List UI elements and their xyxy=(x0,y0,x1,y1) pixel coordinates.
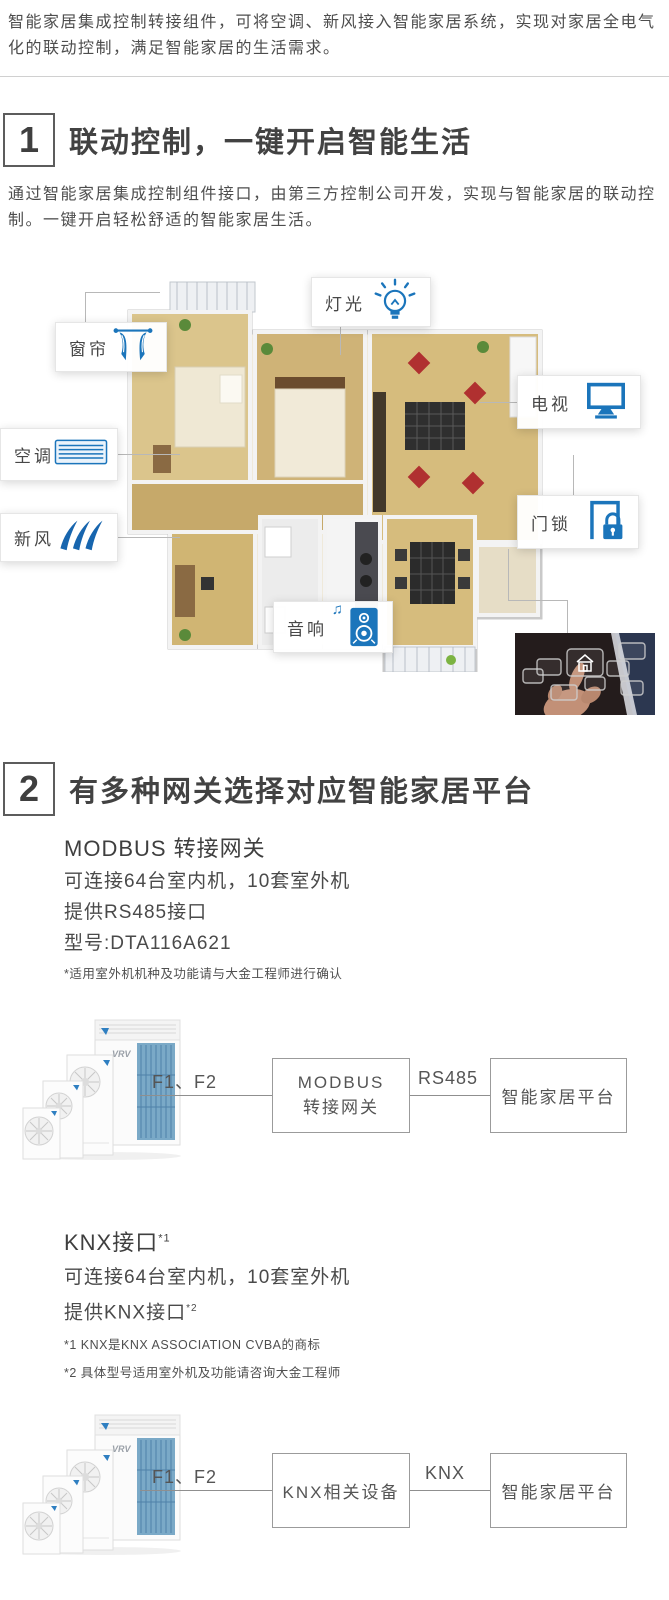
knx-device-label: KNX相关设备 xyxy=(283,1478,400,1503)
modbus-gateway-line2: 转接网关 xyxy=(303,1093,379,1118)
light-label: 灯光 xyxy=(325,290,365,315)
connector-line xyxy=(340,327,341,355)
curtain-icon xyxy=(113,327,153,368)
diagram-line xyxy=(410,1490,490,1491)
knx-diagram: F1、F2 KNX相关设备 KNX 智能家居平台 xyxy=(0,1405,669,1565)
connector-line xyxy=(118,537,180,538)
ac-label: 空调 xyxy=(14,442,54,467)
wind-icon xyxy=(58,518,104,557)
knx-subtitle-text: KNX接口 xyxy=(64,1230,158,1255)
section1-description: 通过智能家居集成控制组件接口，由第三方控制公司开发，实现与智能家居的联动控制。一… xyxy=(8,182,660,234)
knx-spec-line: 提供KNX接口*2 xyxy=(64,1293,350,1328)
connector-line xyxy=(573,455,574,495)
modbus-spec-line: 型号:DTA116A621 xyxy=(64,928,350,959)
knx-footnote-1: *1 KNX是KNX ASSOCIATION CVBA的商标 xyxy=(64,1334,321,1353)
knx-subtitle-note: *1 xyxy=(158,1233,170,1245)
connector-line xyxy=(567,600,568,633)
knx-device-box: KNX相关设备 xyxy=(272,1453,410,1528)
touch-photo xyxy=(515,633,655,715)
rs485-label: RS485 xyxy=(418,1068,478,1089)
audio-label: 音响 xyxy=(287,615,327,640)
modbus-subtitle: MODBUS 转接网关 xyxy=(64,831,266,863)
diagram-line xyxy=(140,1095,272,1096)
modbus-specs: 可连接64台室内机，10套室外机 提供RS485接口 型号:DTA116A621 xyxy=(64,866,350,959)
tv-icon xyxy=(585,381,627,424)
callout-ac: 空调 xyxy=(0,428,118,481)
wiring-label: F1、F2 xyxy=(152,1068,217,1094)
modbus-spec-line: 提供RS485接口 xyxy=(64,897,350,928)
knx-link-label: KNX xyxy=(425,1463,465,1484)
knx-footnote-2: *2 具体型号适用室外机及功能请咨询大金工程师 xyxy=(64,1362,341,1381)
knx-spec-line2-note: *2 xyxy=(186,1303,197,1314)
connector-line xyxy=(118,454,180,455)
top-divider xyxy=(0,76,669,77)
connector-line xyxy=(85,292,160,293)
callout-light: 灯光 xyxy=(311,277,431,327)
intro-text: 智能家居集成控制转接组件，可将空调、新风接入智能家居系统，实现对家居全电气化的联… xyxy=(8,10,660,62)
smart-home-platform-box: 智能家居平台 xyxy=(490,1453,627,1528)
smart-home-illustration: 窗帘 灯光 xyxy=(0,265,669,720)
modbus-footnote: *适用室外机机种及功能请与大金工程师进行确认 xyxy=(64,963,342,982)
modbus-gateway-box: MODBUS 转接网关 xyxy=(272,1058,410,1133)
knx-specs: 可连接64台室内机，10套室外机 提供KNX接口*2 xyxy=(64,1262,350,1328)
callout-tv: 电视 xyxy=(517,375,641,429)
diagram-line xyxy=(140,1490,272,1491)
fresh-air-label: 新风 xyxy=(14,525,54,550)
knx-subtitle: KNX接口*1 xyxy=(64,1225,171,1257)
section1-header: 1 联动控制，一键开启智能生活 xyxy=(3,113,472,167)
platform-label: 智能家居平台 xyxy=(502,1478,616,1503)
wiring-label: F1、F2 xyxy=(152,1463,217,1489)
connector-line xyxy=(508,600,567,601)
callout-audio: 音响 ♫ xyxy=(273,601,393,653)
connector-line xyxy=(480,402,517,403)
platform-label: 智能家居平台 xyxy=(502,1083,616,1108)
product-page: 智能家居集成控制转接组件，可将空调、新风接入智能家居系统，实现对家居全电气化的联… xyxy=(0,0,669,1600)
tv-label: 电视 xyxy=(531,390,571,415)
knx-spec-line: 可连接64台室内机，10套室外机 xyxy=(64,1262,350,1293)
callout-curtain: 窗帘 xyxy=(55,322,167,372)
smart-home-platform-box: 智能家居平台 xyxy=(490,1058,627,1133)
callout-fresh-air: 新风 xyxy=(0,513,118,562)
knx-spec-line2-text: 提供KNX接口 xyxy=(64,1302,186,1323)
door-lock-icon xyxy=(585,499,625,546)
door-lock-label: 门锁 xyxy=(531,510,571,535)
speaker-icon: ♫ xyxy=(332,607,379,647)
section2-title: 有多种网关选择对应智能家居平台 xyxy=(69,768,534,810)
ac-vent-icon xyxy=(54,439,108,470)
diagram-line xyxy=(410,1095,490,1096)
section1-title: 联动控制，一键开启智能生活 xyxy=(69,119,472,161)
connector-line xyxy=(85,292,86,322)
light-bulb-icon xyxy=(373,278,417,327)
music-note-icon: ♫ xyxy=(332,601,346,618)
modbus-diagram: F1、F2 MODBUS 转接网关 RS485 智能家居平台 xyxy=(0,1010,669,1170)
section2-number-box: 2 xyxy=(3,762,55,816)
modbus-gateway-line1: MODBUS xyxy=(298,1073,385,1093)
section1-number-box: 1 xyxy=(3,113,55,167)
connector-line xyxy=(508,549,509,600)
curtain-label: 窗帘 xyxy=(69,335,109,360)
section2-header: 2 有多种网关选择对应智能家居平台 xyxy=(3,762,534,816)
modbus-spec-line: 可连接64台室内机，10套室外机 xyxy=(64,866,350,897)
callout-door-lock: 门锁 xyxy=(517,495,639,549)
